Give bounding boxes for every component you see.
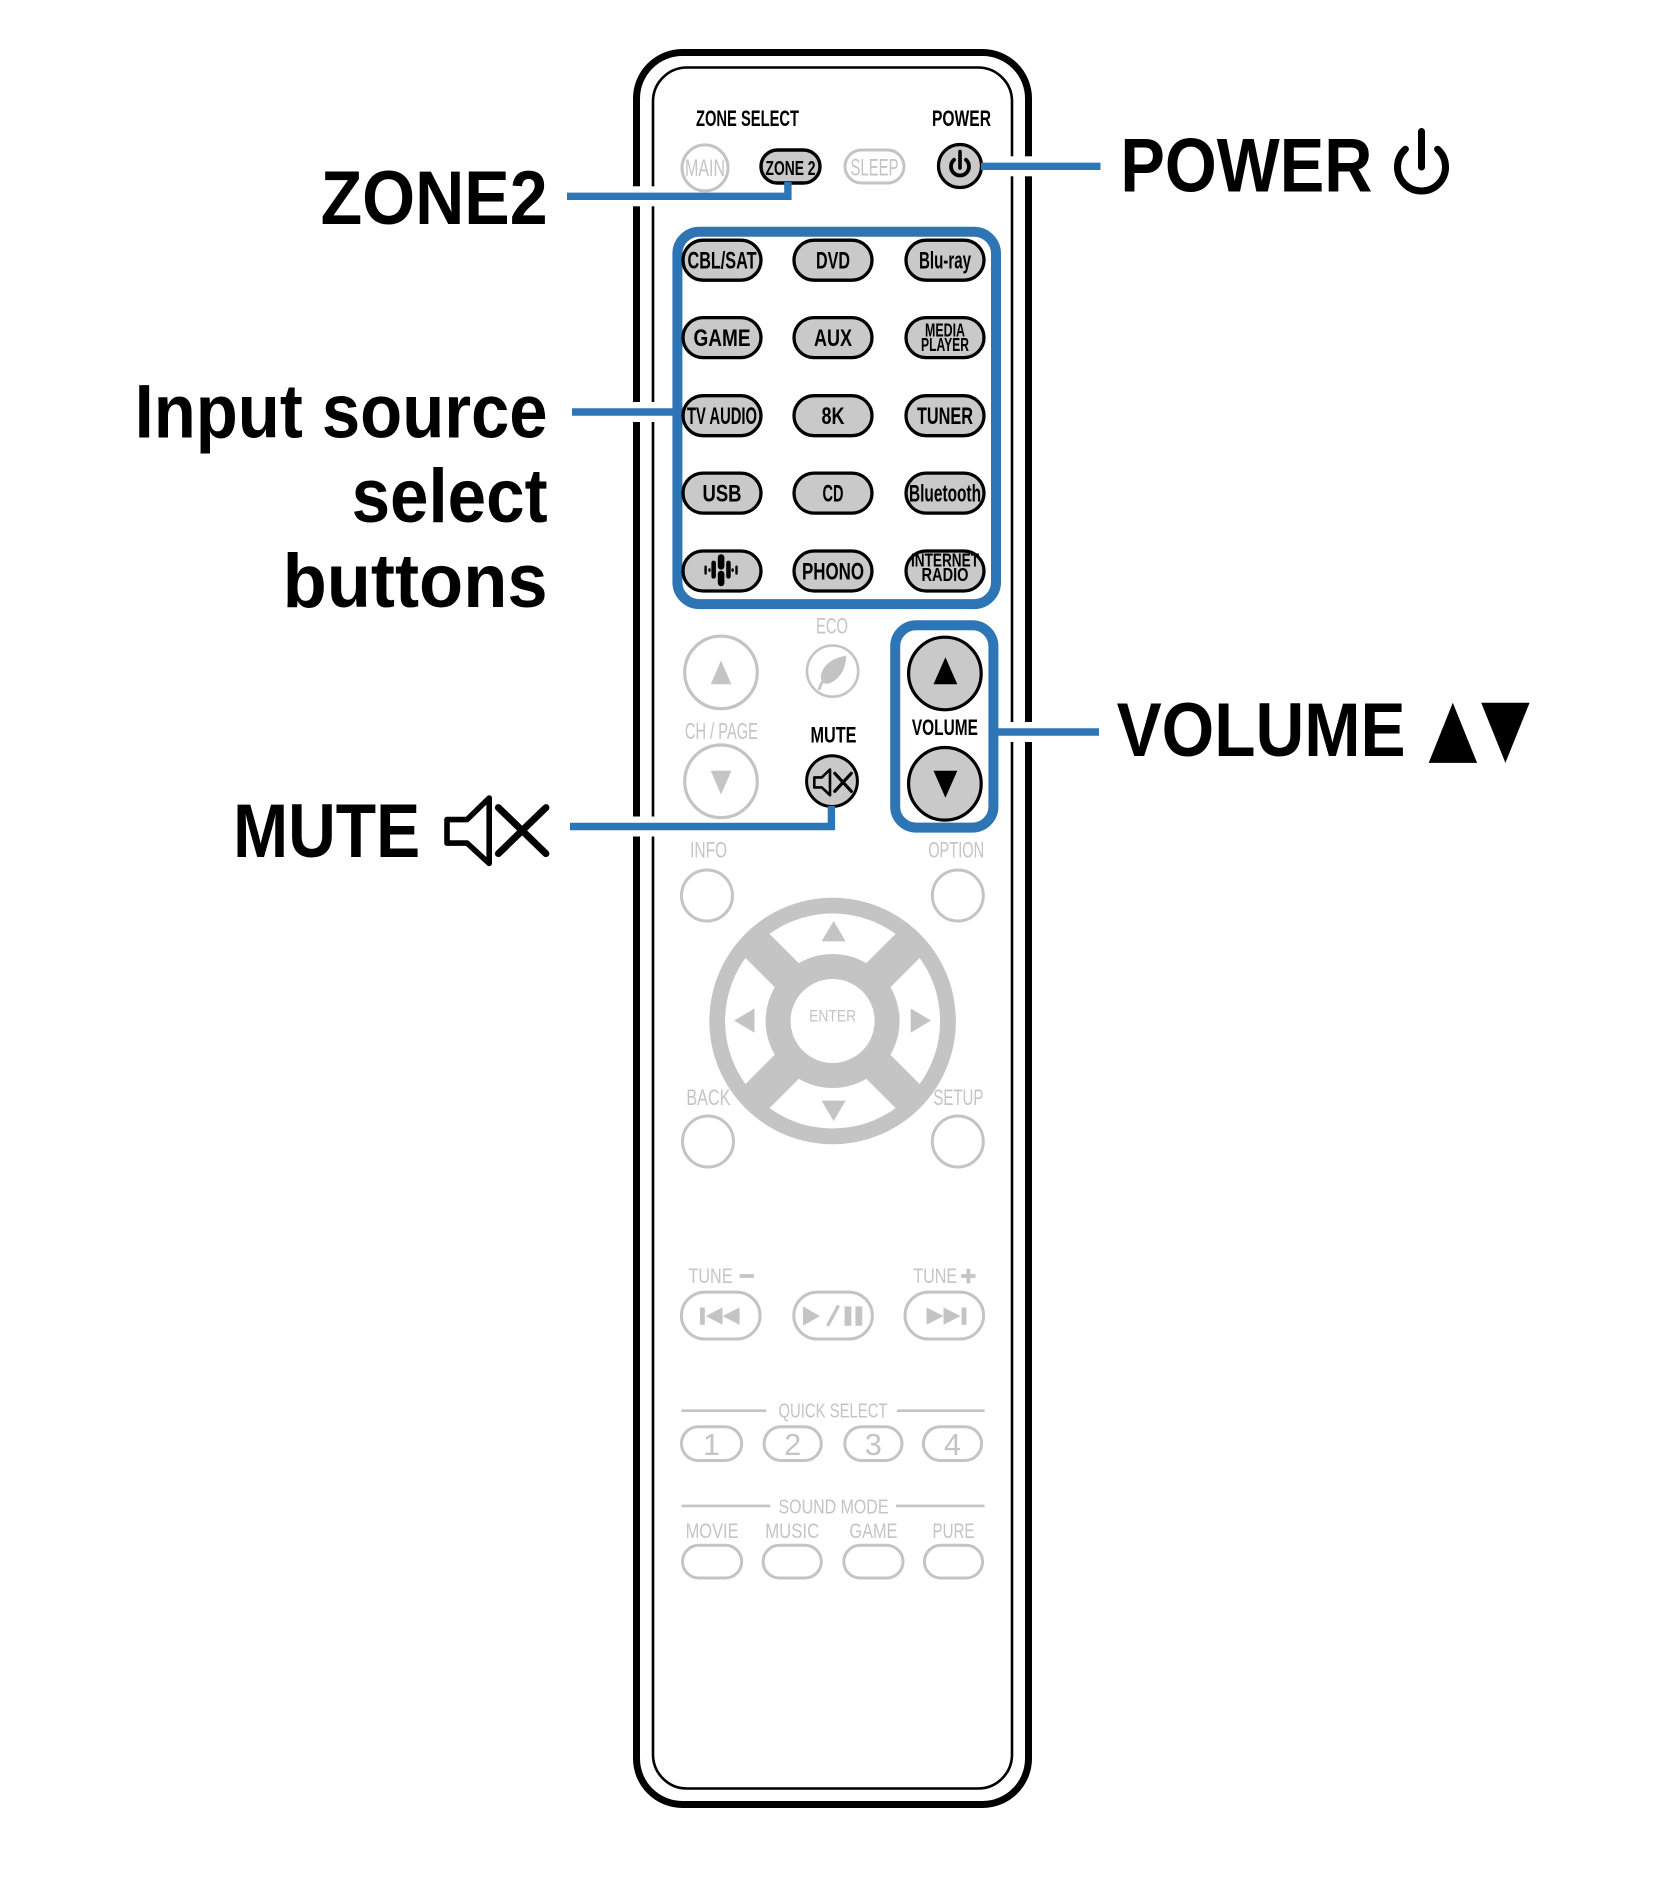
svg-text:1: 1 xyxy=(703,1428,720,1462)
svg-text:4: 4 xyxy=(944,1428,961,1462)
svg-text:GAME: GAME xyxy=(694,325,751,352)
svg-text:MOVIE: MOVIE xyxy=(686,1520,739,1543)
svg-text:BACK: BACK xyxy=(686,1085,730,1110)
svg-text:TUNER: TUNER xyxy=(917,403,973,430)
svg-text:ZONE2: ZONE2 xyxy=(321,156,548,241)
svg-text:CBL/SAT: CBL/SAT xyxy=(688,248,757,275)
svg-text:OPTION: OPTION xyxy=(928,837,984,862)
svg-text:INFO: INFO xyxy=(690,837,727,862)
svg-text:SOUND MODE: SOUND MODE xyxy=(779,1497,889,1519)
svg-text:TUNE: TUNE xyxy=(689,1265,733,1288)
svg-text:QUICK SELECT: QUICK SELECT xyxy=(779,1401,888,1423)
svg-text:ZONE 2: ZONE 2 xyxy=(766,158,816,180)
svg-text:RADIO: RADIO xyxy=(922,565,969,585)
svg-text:Blu-ray: Blu-ray xyxy=(919,248,971,275)
svg-text:CH / PAGE: CH / PAGE xyxy=(685,718,758,744)
svg-text:ENTER: ENTER xyxy=(809,1008,856,1026)
svg-text:ECO: ECO xyxy=(816,614,848,639)
svg-text:DVD: DVD xyxy=(816,248,850,275)
svg-text:MUTE: MUTE xyxy=(811,723,857,748)
svg-text:AUX: AUX xyxy=(814,325,852,352)
svg-text:Input source: Input source xyxy=(135,370,548,455)
svg-text:MAIN: MAIN xyxy=(685,155,725,182)
svg-text:TV AUDIO: TV AUDIO xyxy=(687,403,757,430)
svg-text:VOLUME: VOLUME xyxy=(912,715,978,740)
svg-text:TUNE: TUNE xyxy=(913,1265,957,1288)
svg-text:ZONE SELECT: ZONE SELECT xyxy=(696,106,799,131)
svg-text:MUSIC: MUSIC xyxy=(765,1520,819,1543)
svg-text:POWER: POWER xyxy=(932,106,991,131)
svg-text:GAME: GAME xyxy=(849,1520,897,1543)
svg-text:PHONO: PHONO xyxy=(802,558,864,585)
svg-text:VOLUME: VOLUME xyxy=(1117,688,1406,773)
svg-text:SLEEP: SLEEP xyxy=(851,155,899,182)
svg-text:select: select xyxy=(352,454,548,539)
svg-text:MUTE: MUTE xyxy=(233,789,420,874)
svg-text:8K: 8K xyxy=(822,403,845,430)
svg-text:2: 2 xyxy=(784,1428,801,1462)
svg-text:CD: CD xyxy=(823,480,844,507)
svg-text:Bluetooth: Bluetooth xyxy=(909,480,981,507)
svg-text:PURE: PURE xyxy=(933,1520,975,1543)
svg-text:buttons: buttons xyxy=(283,539,548,624)
svg-text:SETUP: SETUP xyxy=(933,1085,983,1110)
svg-text:3: 3 xyxy=(865,1428,882,1462)
svg-text:PLAYER: PLAYER xyxy=(921,335,969,355)
svg-text:USB: USB xyxy=(703,480,742,507)
svg-text:POWER: POWER xyxy=(1120,123,1372,208)
